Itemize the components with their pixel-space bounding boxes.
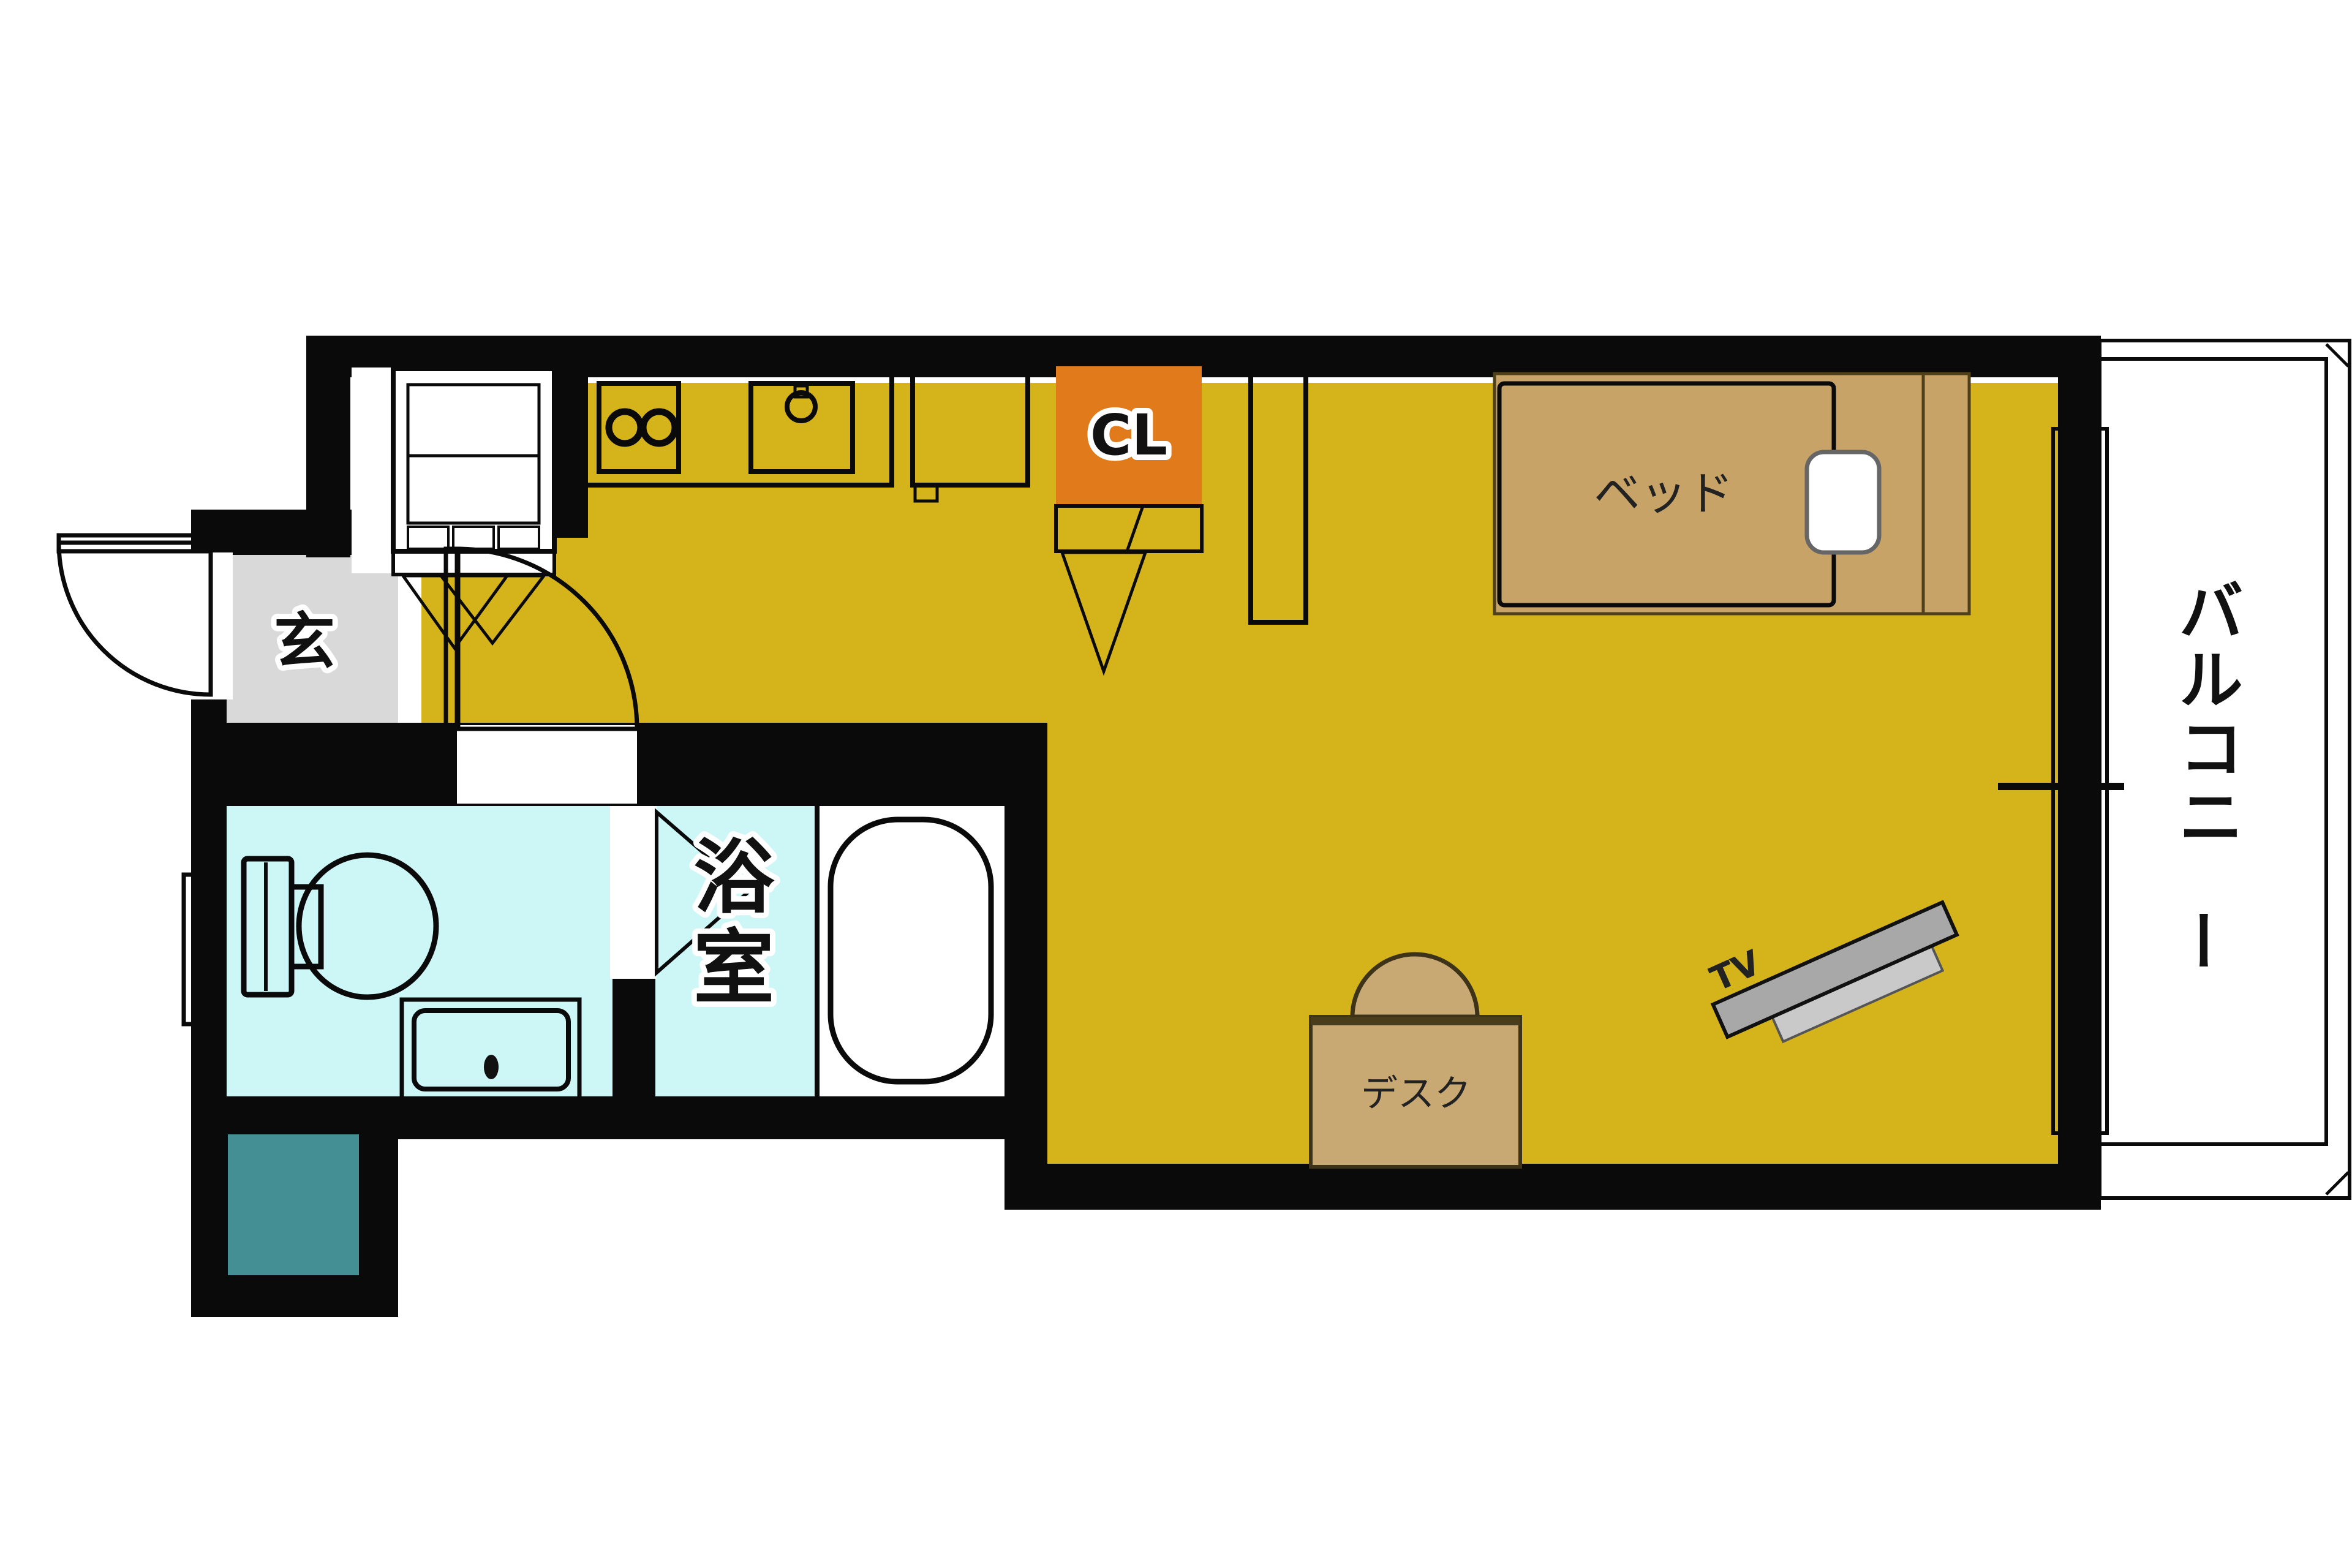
balcony-label: バルコニー bbox=[2164, 575, 2243, 972]
closet-label: CL bbox=[1090, 402, 1167, 468]
balcony-corner-mark-bottom bbox=[2326, 1172, 2348, 1194]
bathroom-door-opening bbox=[610, 806, 657, 979]
floor-plan: CL ベッド デスク bbox=[0, 0, 2352, 1568]
balcony-window-division-tick bbox=[1998, 783, 2124, 790]
bathtub-zone-divider bbox=[815, 806, 820, 1096]
balcony-corner-mark-top bbox=[2326, 344, 2348, 366]
wall-cabinet-stub bbox=[554, 336, 588, 538]
washbasin-drain bbox=[484, 1055, 499, 1079]
bed: ベッド bbox=[1494, 374, 1969, 614]
desk-edge bbox=[1311, 1017, 1520, 1025]
bed-label: ベッド bbox=[1594, 466, 1733, 521]
interior-door-opening bbox=[457, 725, 637, 804]
desk-label: デスク bbox=[1361, 1072, 1471, 1115]
toilet-room-floor bbox=[227, 806, 612, 1096]
washer-pan bbox=[228, 1134, 359, 1275]
bathroom-label: 浴室 bbox=[693, 831, 775, 1016]
wall-bottom-main bbox=[1005, 1164, 2101, 1210]
bed-pillow bbox=[1807, 452, 1879, 552]
entrance-step-strip bbox=[398, 555, 421, 723]
entrance-label: 玄 bbox=[274, 606, 335, 677]
